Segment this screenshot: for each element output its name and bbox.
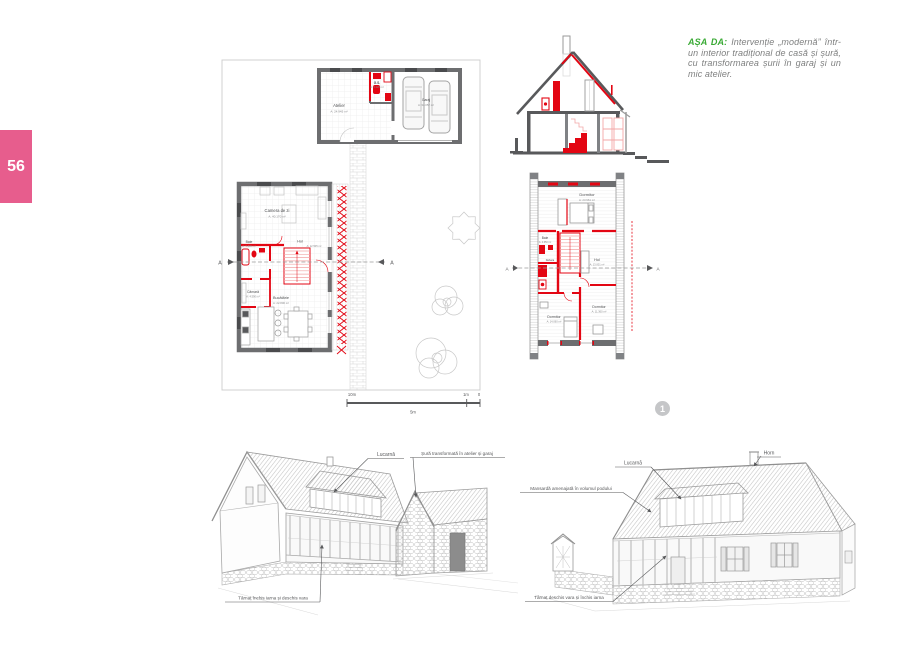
room-label-camera: Camera de zi: [265, 208, 290, 213]
room-area-camara: A: 4.590 m²: [246, 295, 260, 299]
porch-red-hatch: [338, 186, 347, 344]
trees: [416, 212, 480, 378]
room-area-bucatarie: A: 22.800 m²: [273, 301, 289, 305]
room-area-camera: A: 40.170 m²: [268, 215, 285, 219]
upper-floor-plan-drawing: A A Dormitor A: 23.961 m² Baie A: 4.650 …: [498, 165, 663, 365]
eaves-band-right: [616, 173, 624, 359]
room-label-dormitor-3: Dormitor: [547, 315, 561, 319]
room-label-baie: Baie: [542, 236, 549, 240]
porch-glazing-pink: [603, 118, 623, 150]
chimney: [563, 36, 570, 54]
caption-heading: AȘA DA:: [688, 37, 727, 47]
room-label-atelier: Atelier: [333, 103, 345, 108]
scale-label-1m: 1m: [463, 392, 469, 397]
car: [429, 81, 450, 133]
room-label-debara: Debara: [546, 258, 555, 262]
tree-cloud-2: [416, 338, 457, 378]
attic-red-panel: [553, 81, 560, 111]
label-dormer: Lucarnă: [624, 461, 642, 467]
room-label-bucatarie: Bucătărie: [273, 296, 289, 300]
label-porch: Târnaț închis iarna și deschis vara: [238, 596, 308, 601]
scale-label-5m: 5m: [410, 410, 416, 415]
paved-path: [350, 142, 366, 390]
label-attic: Mansardă amenajată în volumul podului: [530, 486, 611, 491]
room-label-hol: Hol: [594, 258, 600, 262]
label-porch: Târnaț deschis vara și închis iarna: [534, 595, 604, 600]
section-mark-a-right: A: [390, 261, 394, 267]
section-house: [510, 36, 669, 163]
room-area-gs: A: 5.220 m²: [370, 85, 384, 89]
label-dormer: Lucarnă: [377, 452, 395, 458]
annex-plan: Atelier A: 24.945 m² G.S. A: 5.220 m² Ga…: [319, 68, 460, 142]
barn-sketch: [393, 488, 493, 579]
room-label-gs: G.S.: [374, 81, 380, 85]
scale-bar: 10m 1m 0 5m: [347, 392, 481, 415]
label-barn: Șură transformată în atelier și garaj: [421, 451, 493, 456]
room-area-dormitor-1: A: 23.961 m²: [579, 198, 595, 202]
room-area-baie: A: 5.800 m²: [242, 244, 256, 248]
dormer-face: [660, 493, 743, 527]
chimney: [327, 457, 333, 466]
entry-door: [671, 557, 685, 584]
room-area-atelier: A: 24.945 m²: [330, 110, 347, 114]
stone-fence: [551, 534, 613, 595]
caption: AȘA DA: Intervenție „modernă” într-un in…: [688, 37, 841, 79]
room-label-hol: Hol: [297, 240, 303, 244]
house-sketch: [535, 452, 855, 611]
chimney: [750, 452, 758, 465]
room-label-garaj: Garaj: [422, 98, 431, 102]
room-area-baie: A: 4.650 m²: [539, 241, 552, 244]
document-page: 56 AȘA DA: Intervenție „modernă” într-un…: [0, 0, 920, 650]
ground-floor-plan: Camera de zi A: 40.170 m² Baie A: 5.800 …: [237, 182, 348, 354]
site-plan-drawing: Atelier A: 24.945 m² G.S. A: 5.220 m² Ga…: [200, 55, 500, 420]
section-mark-a-left: A: [505, 267, 509, 272]
stairs: [284, 248, 310, 284]
section-drawing: [505, 28, 675, 173]
room-label-dormitor-1: Dormitor: [579, 192, 595, 197]
scale-label-0: 0: [478, 392, 481, 397]
room-label-dormitor-2: Dormitor: [592, 305, 606, 309]
eaves-band-left: [530, 173, 538, 359]
section-mark-a-right: A: [656, 267, 660, 272]
tree-spiky: [448, 212, 480, 244]
room-area-hol: A: 12.505 m²: [307, 244, 322, 248]
room-label-camara: Cămară: [247, 290, 259, 294]
scale-label-10m: 10m: [348, 392, 357, 397]
room-label-baie: Baie: [246, 240, 253, 244]
room-area-dormitor-3: A: 14.060 m²: [547, 320, 562, 324]
figure-number: 1: [660, 404, 665, 414]
section-mark-a-left: A: [218, 261, 222, 267]
tree-cloud-1: [432, 286, 463, 315]
stairs: [560, 233, 580, 273]
room-area-hol: A: 13.001 m²: [590, 263, 605, 267]
sketch-right: Lucarnă Horn Mansardă amenajată în volum…: [505, 443, 865, 623]
label-chimney: Horn: [764, 451, 775, 457]
page-number-tab: 56: [0, 130, 32, 203]
page-number: 56: [7, 158, 25, 176]
barn-door: [450, 533, 465, 571]
porch-tarnat: [332, 184, 348, 354]
sketch-left: Lucarnă Șură transformată în atelier și …: [198, 443, 523, 618]
room-area-garaj: A: 34.057 m²: [418, 103, 434, 107]
room-area-dormitor-2: A: 11.360 m²: [592, 310, 607, 314]
figure-badge: 1: [655, 401, 670, 416]
